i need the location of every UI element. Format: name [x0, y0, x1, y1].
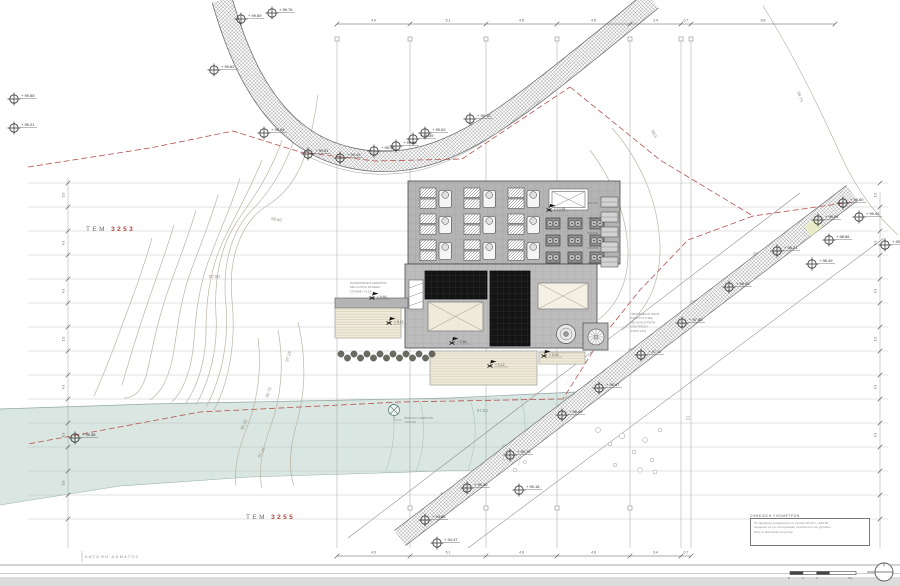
dim-value: 4.9 — [371, 19, 376, 23]
spot-elevation-value: + 95.58 — [82, 432, 96, 437]
spot-elevation-marker: + 99.42 — [853, 211, 883, 224]
vent-fan-rosette — [588, 329, 604, 345]
stair-dome — [557, 325, 576, 344]
notes-block: ΣΗΜΕΙΩΣΗ ΥΨΟΜΕΤΡΩΝ Τα υψόμετρα αναφέροντ… — [750, 514, 870, 546]
flag-elevation-value: + 9.12 — [495, 363, 505, 367]
west-terrace — [335, 298, 408, 338]
spot-elevation-value: + 96.67 — [606, 382, 620, 387]
dim-value: 9.6 — [761, 19, 766, 23]
shrub — [396, 355, 402, 361]
stone — [596, 428, 601, 433]
contour-elevation-label: 99.5 — [650, 129, 659, 139]
flag-elevation-value: + 9.12 — [394, 320, 404, 324]
spot-elevation-value: + 98.21 — [784, 245, 798, 250]
dim-value: 3.4 — [653, 551, 658, 555]
dim-value: 0.9 — [62, 481, 66, 486]
shrub — [364, 351, 370, 357]
spot-elevation-value: + 95.30 — [474, 482, 488, 487]
fan-coil-label: FCU 01 — [588, 201, 599, 205]
fan-coil-label: FCU 02 — [588, 216, 599, 220]
contour-line — [196, 140, 282, 405]
grid-node-square — [555, 37, 559, 41]
spot-elevation-value: + 95.18 — [526, 484, 540, 489]
contour-line — [172, 178, 240, 402]
shrub — [390, 351, 396, 357]
shrub — [338, 351, 344, 357]
fan-coil-label: FCU 04 — [588, 246, 599, 250]
grid-node-square — [484, 37, 488, 41]
shrub — [377, 351, 383, 357]
dim-value: 1.0 — [62, 337, 66, 342]
ac-condenser-unit — [568, 218, 582, 229]
stone — [524, 461, 527, 464]
spot-elevation-value: + 99.55 — [21, 93, 35, 98]
flag-elevation-value: + 10.48 — [554, 207, 566, 211]
dim-value: 4.9 — [62, 289, 66, 294]
stone — [619, 433, 625, 439]
dim-value: 5.1 — [446, 551, 451, 555]
contour-elevation-label: 97.25 — [284, 350, 292, 362]
shrub — [383, 355, 389, 361]
dim-value: 4.9 — [62, 385, 66, 390]
spot-elevation-value: + 98.66 — [836, 234, 850, 239]
stone — [632, 450, 636, 454]
dim-value: 4.8 — [591, 551, 596, 555]
spot-elevation-marker: + 99.76 — [266, 7, 296, 20]
shrub — [416, 351, 422, 357]
spot-elevation-marker: + 99.55 — [8, 93, 38, 106]
contour-line — [94, 238, 152, 396]
spot-elevation-value: + 95.76 — [517, 449, 531, 454]
dim-value: 5.1 — [446, 19, 451, 23]
shrub — [370, 355, 376, 361]
south-terrace — [430, 351, 585, 385]
site-plan-sheet: FCU 01FCU 02FCU 03FCU 04FCU 05 — [0, 0, 900, 586]
shrub — [403, 351, 409, 357]
spot-elevation-value: + 94.47 — [444, 537, 458, 542]
planting-strip — [338, 351, 435, 361]
spot-elevation-value: + 99.76 — [279, 7, 293, 12]
stone — [613, 463, 617, 467]
spot-elevation-value: + 99.62 — [221, 64, 235, 69]
contour-elevation-label: 99.75 — [796, 91, 804, 103]
dim-value: 4.8 — [519, 19, 524, 23]
well-label: ΥΔΑΤΩΝ — [404, 420, 416, 424]
parcel-number: 3255 — [271, 514, 295, 521]
grid-node-square — [408, 37, 412, 41]
dim-value: 4.9 — [874, 385, 878, 390]
site-plan-drawing: FCU 01FCU 02FCU 03FCU 04FCU 05 — [0, 0, 900, 586]
spot-elevation-value: + 99.21 — [21, 122, 35, 127]
stone — [513, 468, 517, 472]
contour-line — [124, 210, 196, 398]
spot-elevation-value: + 99.15 — [477, 113, 491, 118]
spot-elevation-value: + 94.85 — [432, 514, 446, 519]
ac-condenser-unit — [568, 252, 582, 263]
grid-node-square — [679, 37, 683, 41]
shrub — [429, 351, 435, 357]
spot-elevation-value: + 96.43 — [569, 409, 583, 414]
dim-value: 4.9 — [62, 241, 66, 246]
dim-value: 4.8 — [519, 551, 524, 555]
spot-elevation-value: + 99.02 — [432, 127, 446, 132]
parcel-prefix: ΤΕΜ — [86, 226, 107, 233]
ac-condenser-unit — [568, 235, 582, 246]
dim-value: 0.7 — [684, 551, 689, 555]
plan-title: ΚΑΤΟΨΗ ΔΩΜΑΤΟΣ — [85, 555, 140, 559]
spot-elevation-marker: + 98.49 — [806, 258, 836, 271]
dim-value: 0.7 — [684, 19, 689, 23]
fan-coil-label: FCU 03 — [588, 231, 599, 235]
stone — [658, 428, 662, 432]
stone — [653, 470, 657, 474]
grid-node-square — [555, 506, 559, 510]
spot-elevation-value: + 97.12 — [648, 349, 662, 354]
grid-node-square — [484, 506, 488, 510]
parcel-number: 3253 — [111, 226, 135, 233]
spot-elevation-value: + 99.43 — [347, 152, 361, 157]
spot-elevation-value: + 97.58 — [689, 317, 703, 322]
grid-node-square — [408, 506, 412, 510]
dim-value: 1.0 — [874, 337, 878, 342]
spot-elevation-value: + 99.51 — [315, 148, 329, 153]
flag-elevation-value: + 9.66 — [377, 295, 387, 299]
river-stream — [0, 392, 576, 505]
shrub — [344, 355, 350, 361]
scale-bar-labels: 0 1 2 5m — [788, 566, 853, 584]
dim-value: 4.9 — [874, 433, 878, 438]
dim-value: 4.9 — [874, 241, 878, 246]
contour-elevation-label: 98.60 — [271, 216, 283, 223]
dim-value: 1.0 — [874, 193, 878, 198]
dim-value: 4.9 — [371, 551, 376, 555]
spot-elevation-marker: + 99.62 — [208, 64, 238, 77]
spot-elevation-value: + 99.60 — [850, 197, 864, 202]
parcel-prefix: ΤΕΜ — [246, 514, 267, 521]
spot-elevation-value: + 99.42 — [866, 211, 880, 216]
parcel-label-south: ΤΕΜ 3255 — [246, 514, 295, 521]
spot-elevation-marker: + 99.21 — [8, 122, 38, 135]
shrub — [422, 355, 428, 361]
contour-elevation-label: 96.75 — [264, 386, 273, 398]
spot-elevation-value: + 98.94 — [825, 214, 839, 219]
dim-value: 4.9 — [874, 289, 878, 294]
spot-elevation-value: + 99.21 — [892, 239, 900, 244]
stone — [643, 438, 648, 443]
spot-elevation-value: + 99.04 — [271, 127, 285, 132]
ac-condenser-unit — [546, 252, 560, 263]
spot-elevation-marker: + 98.66 — [823, 234, 853, 247]
fan-coil-label: FCU 05 — [588, 261, 599, 265]
road-annotation: ΚΛΙΣΗ 12% — [630, 329, 646, 333]
contour-elevation-label: 97.50 — [209, 274, 220, 279]
dim-value: 4.8 — [591, 19, 596, 23]
grid-node-square — [628, 506, 632, 510]
contour-line — [186, 160, 262, 403]
parcel-label-north: ΤΕΜ 3253 — [86, 226, 135, 233]
roof-ladder — [409, 280, 423, 309]
stone — [686, 416, 690, 420]
spot-elevation-value: + 98.49 — [819, 258, 833, 263]
contour-line — [206, 120, 300, 407]
dim-value: 0.9 — [62, 193, 66, 198]
grid-node-square — [628, 37, 632, 41]
shrub — [351, 351, 357, 357]
stone — [638, 468, 642, 472]
shrub — [357, 355, 363, 361]
flag-elevation-value: + 9.40 — [549, 353, 559, 357]
notes-box: Τα υψόμετρα αναφέρονται σε σχετικό ±0.00… — [750, 518, 870, 546]
stone — [650, 458, 654, 462]
ac-condenser-unit — [546, 218, 560, 229]
spot-elevation-marker: + 94.47 — [431, 537, 461, 550]
grid-node-square — [335, 37, 339, 41]
spot-elevation-marker: + 95.18 — [513, 484, 543, 497]
stone — [608, 442, 612, 446]
dim-value: 3.4 — [653, 19, 658, 23]
grid-node-square — [689, 37, 693, 41]
contour-elevation-label: 97.50 — [477, 408, 488, 413]
spot-elevation-value: + 99.89 — [248, 13, 262, 18]
dim-value: 4.9 — [62, 433, 66, 438]
flag-elevation-value: + 9.66 — [457, 340, 467, 344]
spot-elevation-marker: + 99.21 — [879, 239, 900, 252]
ac-condenser-unit — [546, 235, 560, 246]
terrace-annotation: ΣΤΑΘΜΗ +9.66 — [350, 289, 372, 293]
spot-elevation-value: + 98.03 — [736, 281, 750, 286]
shrub — [409, 355, 415, 361]
